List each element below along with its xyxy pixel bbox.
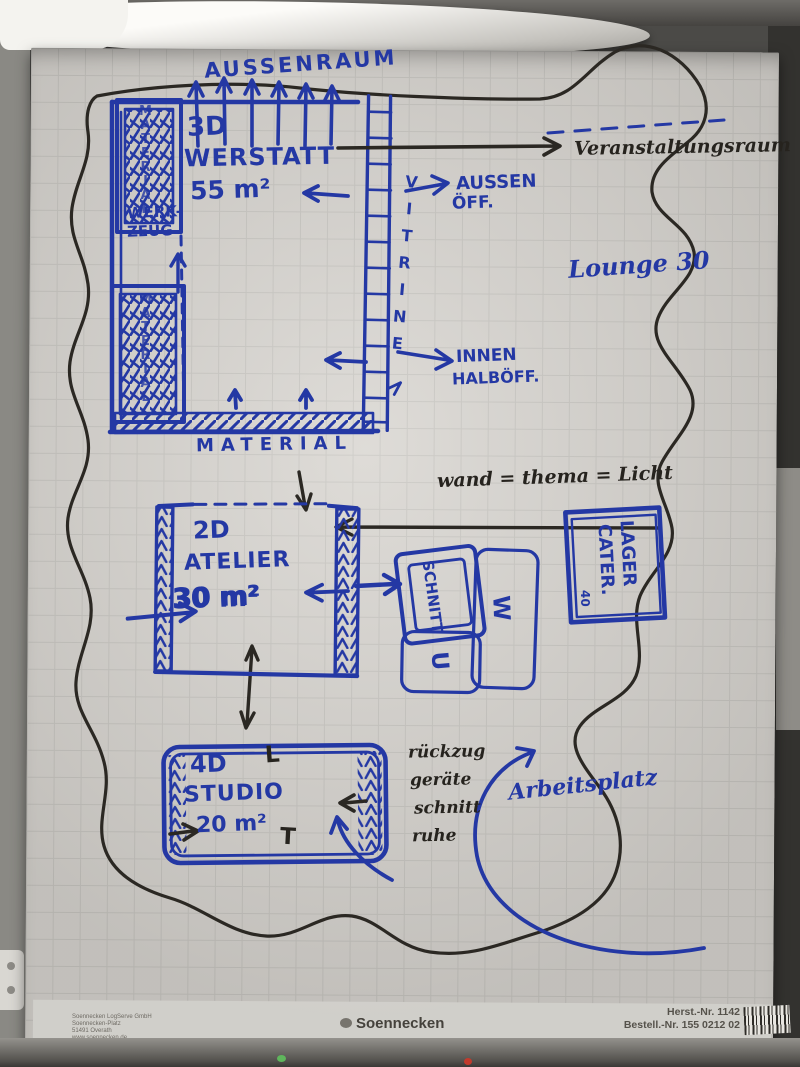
rueckzug-line-3: schnitt [414,797,481,818]
u-label: U [426,651,454,672]
arrow-to-veranstaltungsraum [338,138,560,155]
werkzeug-label-2: ZEUG [127,221,173,241]
soennecken-logo-icon [340,1018,352,1028]
material-wall-label: MATERIAL [196,433,353,457]
lager-label-small: 40 [578,590,592,616]
barcode [743,1005,790,1035]
workshop-interior-arrows [229,186,366,408]
order-numbers: Herst.-Nr. 1142 Bestell.-Nr. 155 0212 02 [560,1006,740,1032]
studio-label-name: STUDIO [184,779,285,807]
sketch-canvas [0,0,800,1067]
herst-nr: Herst.-Nr. 1142 [560,1006,740,1019]
atelier-label-2d: 2D [193,515,231,544]
soennecken-logo-text: Soennecken [356,1015,444,1032]
atelier-label-name: ATELIER [184,547,291,576]
atelier-label-size: 30 m² [171,580,259,614]
w-label: W [487,595,514,621]
studio-label-size: 20 m² [196,811,268,838]
rueckzug-line-4: ruhe [412,826,457,847]
green-light [277,1055,286,1062]
imprint-line: Soennecken LogServe GmbH [72,1014,152,1021]
arrow-into-schnitt [356,575,400,594]
studio-label-4d: 4D [190,749,228,778]
aussen-oeff-label-1: AUSSEN [456,171,537,195]
studio-mark-l: L [264,742,280,769]
innen-halboeff-label-2: HALBÖFF. [452,366,540,388]
shelf-bottom-vertical-label: MATERIAL [138,292,153,418]
aussen-oeff-label-2: ÖFF. [452,192,494,213]
studio-mark-t: T [279,824,296,851]
workshop-label-size: 55 m² [190,174,271,206]
bestell-nr: Bestell.-Nr. 155 0212 02 [560,1019,740,1032]
imprint-line: Soennecken-Platz [72,1021,152,1028]
workshop-label-3d: 3D [186,111,227,142]
rueckzug-line-1: rückzug [408,741,486,762]
innen-halboeff-label-1: INNEN [456,345,517,367]
red-light [464,1058,472,1065]
werkzeug-label-1: WERK- [127,202,182,222]
soennecken-logo: Soennecken [356,1015,444,1032]
veranstaltungsraum-label: Veranstaltungsraum [574,134,791,160]
rueckzug-line-2: geräte [410,769,472,790]
easel-tray [0,1038,800,1067]
imprint-line: 51491 Overath [72,1028,152,1035]
workshop-label-name: WERSTATT [184,142,336,173]
photo-of-flipchart: AUSSENRAUM 3D WERSTATT 55 m² MATERIAL MA… [0,0,800,1067]
